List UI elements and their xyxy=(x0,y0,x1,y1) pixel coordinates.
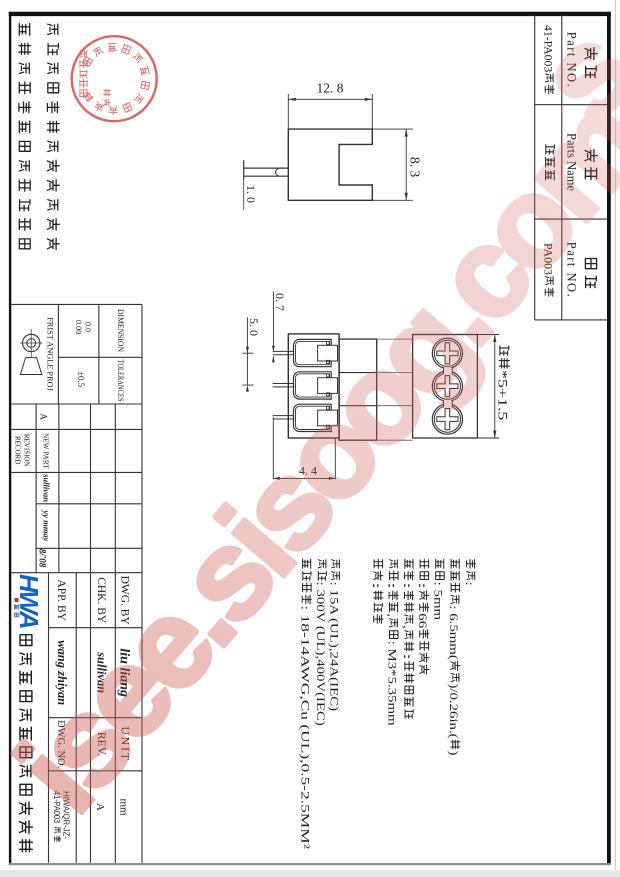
svg-text:: 18-14AWG,Cu (UL),0.5-2.5MM²: : 18-14AWG,Cu (UL),0.5-2.5MM² xyxy=(299,605,311,849)
svg-text:,: , xyxy=(401,625,413,629)
svg-text::: : xyxy=(416,582,428,590)
svg-text::: : xyxy=(401,582,413,590)
svg-text::: : xyxy=(385,582,397,590)
svg-text:REVISION: REVISION xyxy=(23,434,31,467)
svg-text::: : xyxy=(463,582,475,586)
svg-text:APP. BY: APP. BY xyxy=(55,579,67,621)
svg-text:8/'08: 8/'08 xyxy=(38,549,48,568)
svg-text:1. 0: 1. 0 xyxy=(244,185,258,203)
svg-text::: : xyxy=(401,653,413,661)
svg-text:)/0.26in.(: )/0.26in.( xyxy=(447,684,459,739)
svg-text:RECORD: RECORD xyxy=(14,436,22,464)
svg-text:5. 0: 5. 0 xyxy=(247,318,261,336)
svg-text:: M3*5.35mm: : M3*5.35mm xyxy=(385,641,397,726)
svg-text:12. 8: 12. 8 xyxy=(317,81,344,96)
svg-text:,: , xyxy=(385,613,397,617)
svg-text:: 5mm: : 5mm xyxy=(432,582,444,621)
svg-text:TOLERANCES: TOLERANCES xyxy=(116,360,125,402)
svg-text:): ) xyxy=(447,751,459,756)
svg-text:sullivan: sullivan xyxy=(42,473,52,502)
svg-text:FRIST ANGLE PROJ: FRIST ANGLE PROJ xyxy=(46,317,55,391)
svg-text:±0.5: ±0.5 xyxy=(76,371,86,388)
svg-text:0.0: 0.0 xyxy=(84,322,93,332)
svg-text:: 15A (UL),24A(IEC): : 15A (UL),24A(IEC) xyxy=(328,582,340,712)
svg-text:NEW PART: NEW PART xyxy=(42,433,51,469)
svg-text:8. 3: 8. 3 xyxy=(408,157,423,178)
svg-text:DIMENSION: DIMENSION xyxy=(116,309,125,352)
svg-text:: 6.5mm(: : 6.5mm( xyxy=(447,605,459,660)
svg-text:66: 66 xyxy=(416,613,428,628)
svg-text::: : xyxy=(370,582,382,590)
svg-text:yy mmay: yy mmay xyxy=(42,510,52,542)
svg-text:: 300V (UL),400V(IEC): : 300V (UL),400V(IEC) xyxy=(314,582,326,726)
svg-text:0.00: 0.00 xyxy=(74,320,83,334)
svg-text:0. 7: 0. 7 xyxy=(273,293,287,311)
svg-text:*5+1.5: *5+1.5 xyxy=(496,370,511,420)
svg-text:A: A xyxy=(38,413,48,420)
